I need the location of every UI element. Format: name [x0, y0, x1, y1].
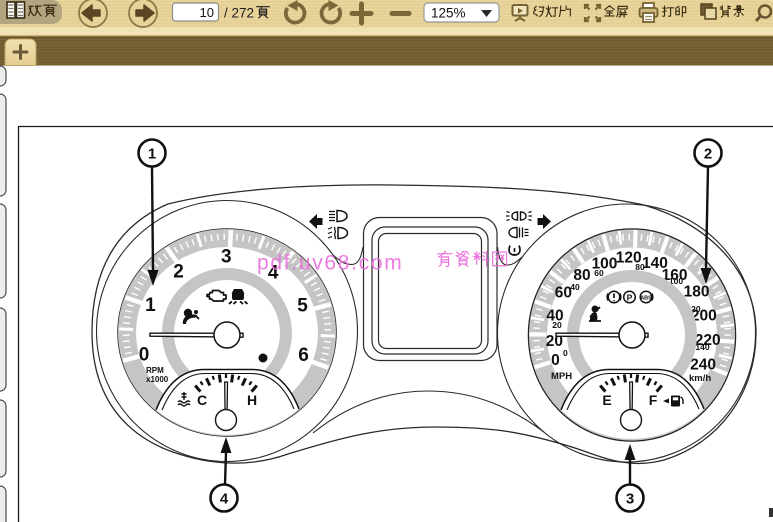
svg-text:MPH: MPH [551, 371, 572, 382]
svg-text:km/h: km/h [689, 373, 711, 384]
svg-text:240: 240 [690, 356, 716, 373]
svg-text:pdf.uv68.com: pdf.uv68.com [257, 252, 403, 275]
svg-text:0: 0 [551, 352, 560, 369]
svg-text:/ 272: / 272 [224, 6, 254, 21]
svg-text:1: 1 [145, 295, 156, 316]
svg-text:ABS: ABS [640, 296, 652, 302]
svg-text:4: 4 [220, 491, 229, 508]
svg-text:C: C [197, 392, 207, 408]
svg-text:125%: 125% [431, 6, 466, 21]
svg-text:F: F [649, 392, 658, 408]
svg-text:2: 2 [704, 146, 712, 163]
svg-text:0: 0 [563, 348, 568, 358]
svg-text:x1000: x1000 [146, 375, 169, 384]
svg-text:180: 180 [684, 284, 710, 301]
svg-text:E: E [602, 392, 611, 408]
svg-text:60: 60 [594, 268, 604, 278]
svg-text:3: 3 [221, 247, 232, 268]
svg-text:1: 1 [148, 146, 156, 163]
svg-text:3: 3 [626, 491, 634, 508]
svg-text:6: 6 [298, 345, 309, 366]
svg-text:RPM: RPM [146, 366, 164, 375]
svg-text:10: 10 [200, 5, 214, 20]
svg-text:40: 40 [570, 282, 580, 292]
svg-text:2: 2 [173, 262, 184, 283]
svg-text:5: 5 [297, 296, 308, 317]
svg-text:P: P [627, 293, 633, 303]
svg-text:0: 0 [139, 345, 150, 366]
svg-text:H: H [247, 392, 257, 408]
svg-text:140: 140 [695, 342, 709, 352]
svg-text:20: 20 [552, 320, 562, 330]
